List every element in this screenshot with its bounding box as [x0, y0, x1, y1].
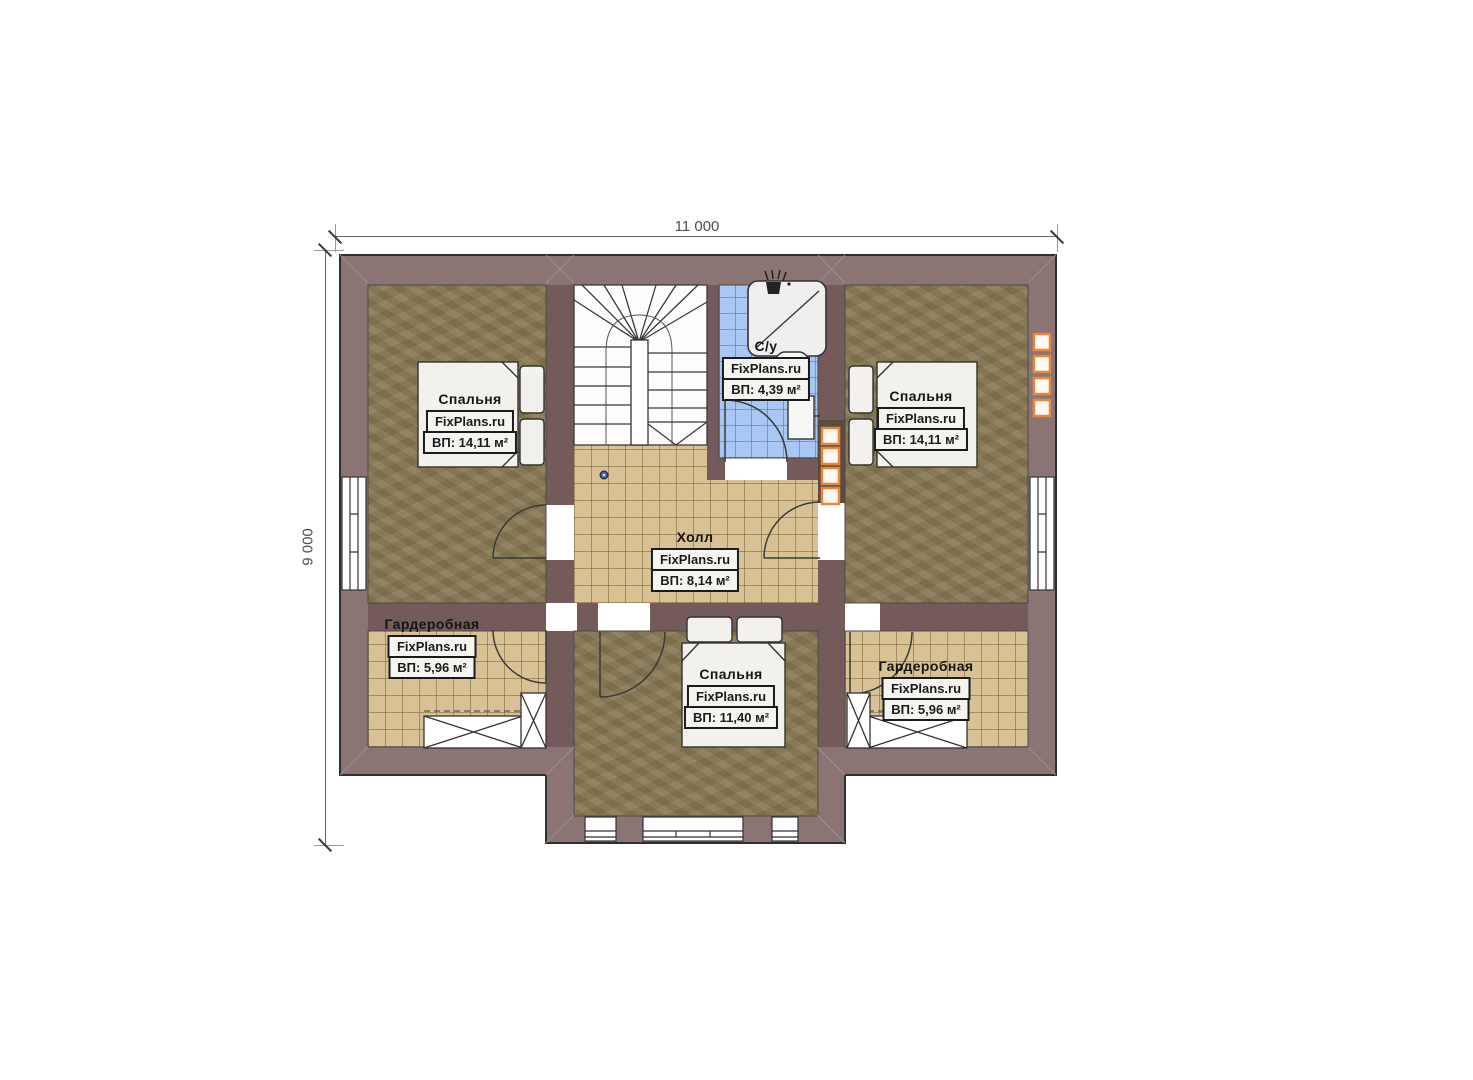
room-name: Спальня	[438, 391, 501, 407]
area-box: ВП: 5,96 м²	[882, 698, 970, 721]
window-left-wall	[342, 477, 366, 590]
bathroom-label: С/у FixPlans.ru ВП: 4,39 м²	[722, 338, 810, 401]
room-name: Спальня	[889, 388, 952, 404]
room-name: Холл	[677, 529, 714, 545]
room-name: Гардеробная	[385, 616, 480, 632]
watermark-box: FixPlans.ru	[687, 685, 775, 708]
door-wardrobeL	[493, 630, 546, 683]
cabinet-wardrobeL-bottom	[424, 711, 523, 748]
door-bedroomB	[600, 632, 665, 697]
staircase	[574, 285, 707, 445]
vent-block	[822, 428, 839, 444]
watermark-box: FixPlans.ru	[882, 677, 970, 700]
toilet	[788, 396, 820, 439]
area-box: ВП: 11,40 м²	[684, 706, 778, 729]
area-box: ВП: 14,11 м²	[423, 431, 517, 454]
window-bay-1	[585, 817, 616, 841]
window-right-wall	[1030, 477, 1054, 590]
window-bay-3	[772, 817, 798, 841]
cabinet-wardrobeR-side	[847, 693, 870, 748]
wardrobe-left-label: Гардеробная FixPlans.ru ВП: 5,96 м²	[385, 616, 480, 679]
room-name: Спальня	[699, 666, 762, 682]
vent-block	[1034, 334, 1050, 350]
room-name: С/у	[754, 338, 777, 354]
bedroom-bottom-label: Спальня FixPlans.ru ВП: 11,40 м²	[684, 666, 778, 729]
watermark-box: FixPlans.ru	[426, 410, 514, 433]
room-name: Гардеробная	[879, 658, 974, 674]
bedroom-right-label: Спальня FixPlans.ru ВП: 14,11 м²	[874, 388, 968, 451]
area-box: ВП: 5,96 м²	[388, 656, 476, 679]
dim-extension-top	[314, 250, 344, 251]
bedroom-left-label: Спальня FixPlans.ru ВП: 14,11 м²	[423, 391, 517, 454]
watermark-box: FixPlans.ru	[651, 548, 739, 571]
cabinet-wardrobeL-side	[521, 693, 546, 748]
dim-line-left	[325, 250, 326, 845]
area-box: ВП: 4,39 м²	[722, 378, 810, 401]
vent-block	[1034, 400, 1050, 416]
dim-height-label: 9 000	[300, 528, 317, 566]
area-box: ВП: 14,11 м²	[874, 428, 968, 451]
door-bathroom	[725, 400, 787, 462]
watermark-box: FixPlans.ru	[722, 357, 810, 380]
watermark-box: FixPlans.ru	[388, 635, 476, 658]
wardrobe-right-label: Гардеробная FixPlans.ru ВП: 5,96 м²	[879, 658, 974, 721]
vent-block	[822, 448, 839, 464]
hall-label: Холл FixPlans.ru ВП: 8,14 м²	[651, 529, 739, 592]
vent-block	[1034, 378, 1050, 394]
floor-dot	[600, 471, 608, 479]
door-bedroomR	[764, 502, 820, 558]
vent-block	[822, 468, 839, 484]
dim-width-label: 11 000	[675, 218, 720, 235]
watermark-box: FixPlans.ru	[877, 407, 965, 430]
dim-extension-bottom	[314, 845, 344, 846]
area-box: ВП: 8,14 м²	[651, 569, 739, 592]
door-bedroomL	[493, 505, 546, 558]
vent-block	[822, 488, 839, 504]
dim-line-top	[335, 236, 1057, 237]
window-bay-2	[643, 817, 743, 841]
vent-block	[1034, 356, 1050, 372]
floor-plan-canvas: 11 000 9 000	[0, 0, 1473, 1080]
